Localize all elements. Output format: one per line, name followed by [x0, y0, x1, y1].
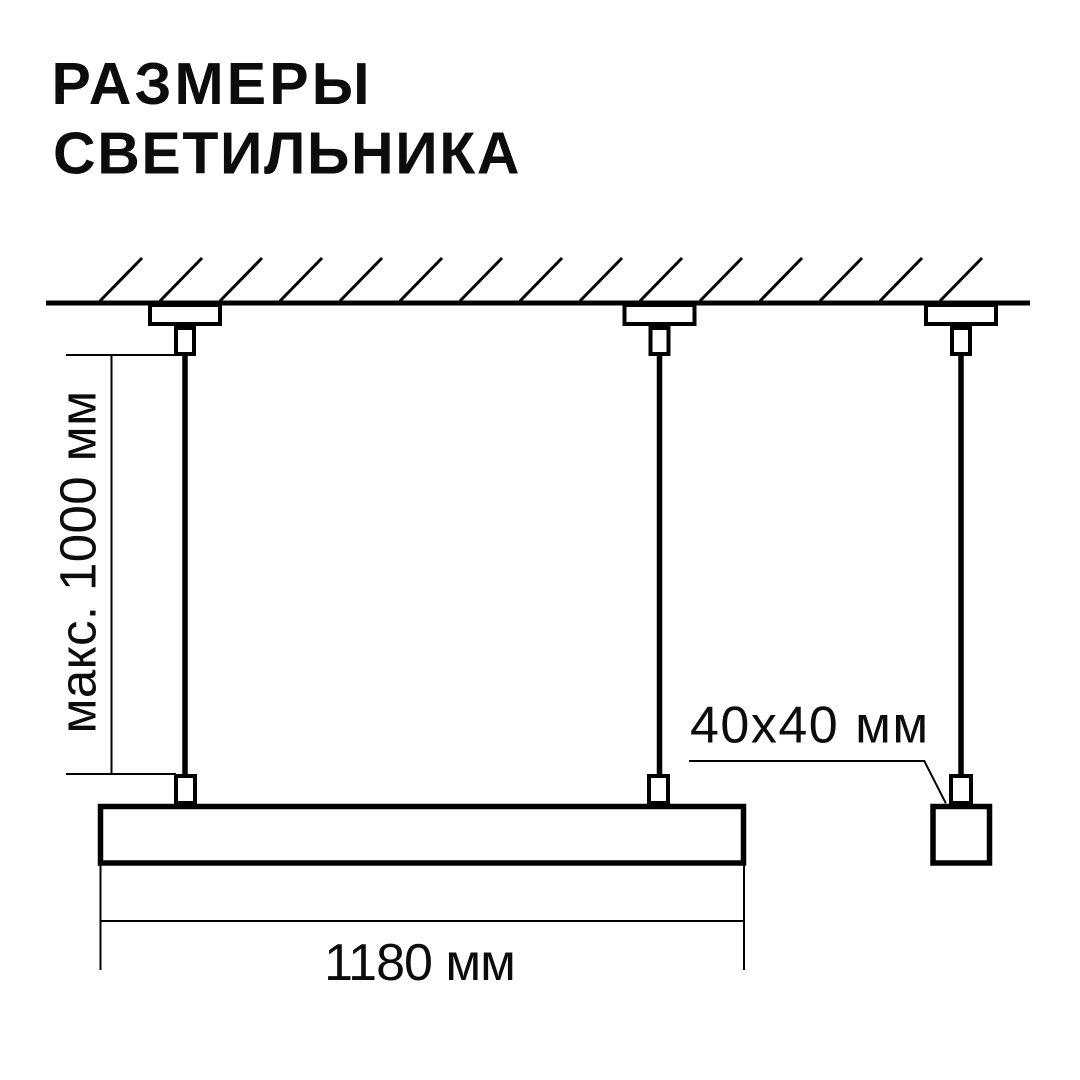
svg-text:СВЕТИЛЬНИКА: СВЕТИЛЬНИКА [53, 121, 521, 187]
svg-text:РАЗМЕРЫ: РАЗМЕРЫ [52, 51, 373, 117]
svg-text:макс. 1000 мм: макс. 1000 мм [50, 390, 107, 733]
svg-text:40x40 мм: 40x40 мм [690, 697, 930, 755]
svg-text:1180 мм: 1180 мм [324, 934, 515, 992]
